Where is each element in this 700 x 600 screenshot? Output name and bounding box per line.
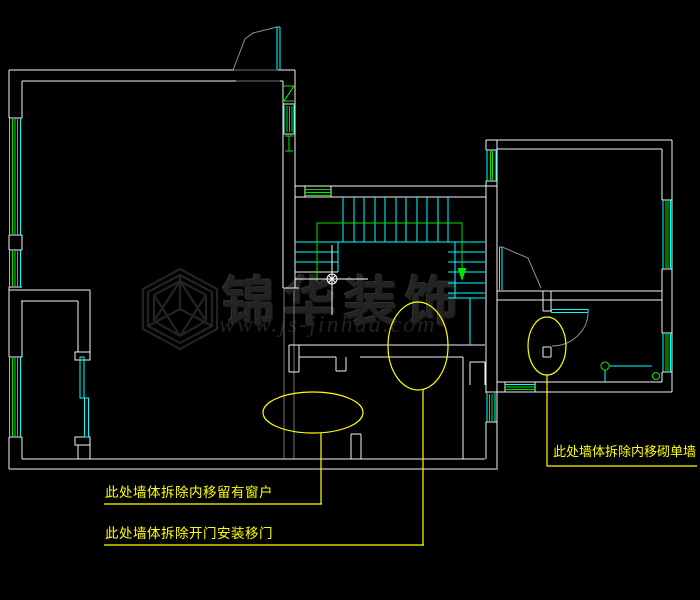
- walls: [9, 70, 672, 470]
- glazing-and-green-marks: [13, 86, 669, 436]
- highlight-ellipse-right: [528, 317, 566, 375]
- right-wall-windows: [663, 200, 671, 372]
- bathroom-door-swing: [552, 312, 588, 346]
- leader-sliding-door: [104, 389, 424, 545]
- z-insulation-mark: [284, 86, 294, 101]
- highlight-ellipse-left: [263, 392, 363, 433]
- drain-symbol: [653, 373, 660, 380]
- bedroom-door-swing: [502, 247, 541, 288]
- entry-door-swing: [233, 27, 277, 70]
- cad-drawing-canvas[interactable]: 锦华装饰 www.js-jinhua.com: [0, 0, 700, 600]
- toilet-symbol: [601, 362, 609, 370]
- window-frames-and-stairs: [10, 27, 671, 437]
- annotation-sliding-door: 此处墙体拆除开门安装移门: [105, 527, 273, 542]
- demolished-wall-lines: [234, 70, 294, 459]
- wall-center-mark: [285, 136, 293, 151]
- crosshair-cursor-icon: [295, 245, 368, 315]
- closet-sliding-door-panels: [80, 357, 89, 437]
- interior-windows: [487, 150, 496, 422]
- left-wall-glazing: [13, 119, 18, 436]
- door-panels: [277, 27, 588, 313]
- vent-hatch-bottom: [505, 387, 535, 390]
- demolished-wall-glazing: [287, 106, 292, 132]
- highlight-ellipse-middle: [388, 302, 448, 390]
- floorplan-linework: [0, 0, 700, 600]
- interior-glazing: [490, 151, 493, 421]
- staircase-treads: [295, 197, 485, 345]
- highlight-markup: [104, 302, 697, 545]
- annotation-single-wall: 此处墙体拆除内移砌单墙: [553, 445, 696, 460]
- annotation-left-window: 此处墙体拆除内移留有窗户: [105, 486, 273, 501]
- vent-hatch-top: [305, 190, 331, 196]
- stair-direction-arrow: [317, 223, 467, 282]
- right-wall-glazing: [666, 201, 668, 371]
